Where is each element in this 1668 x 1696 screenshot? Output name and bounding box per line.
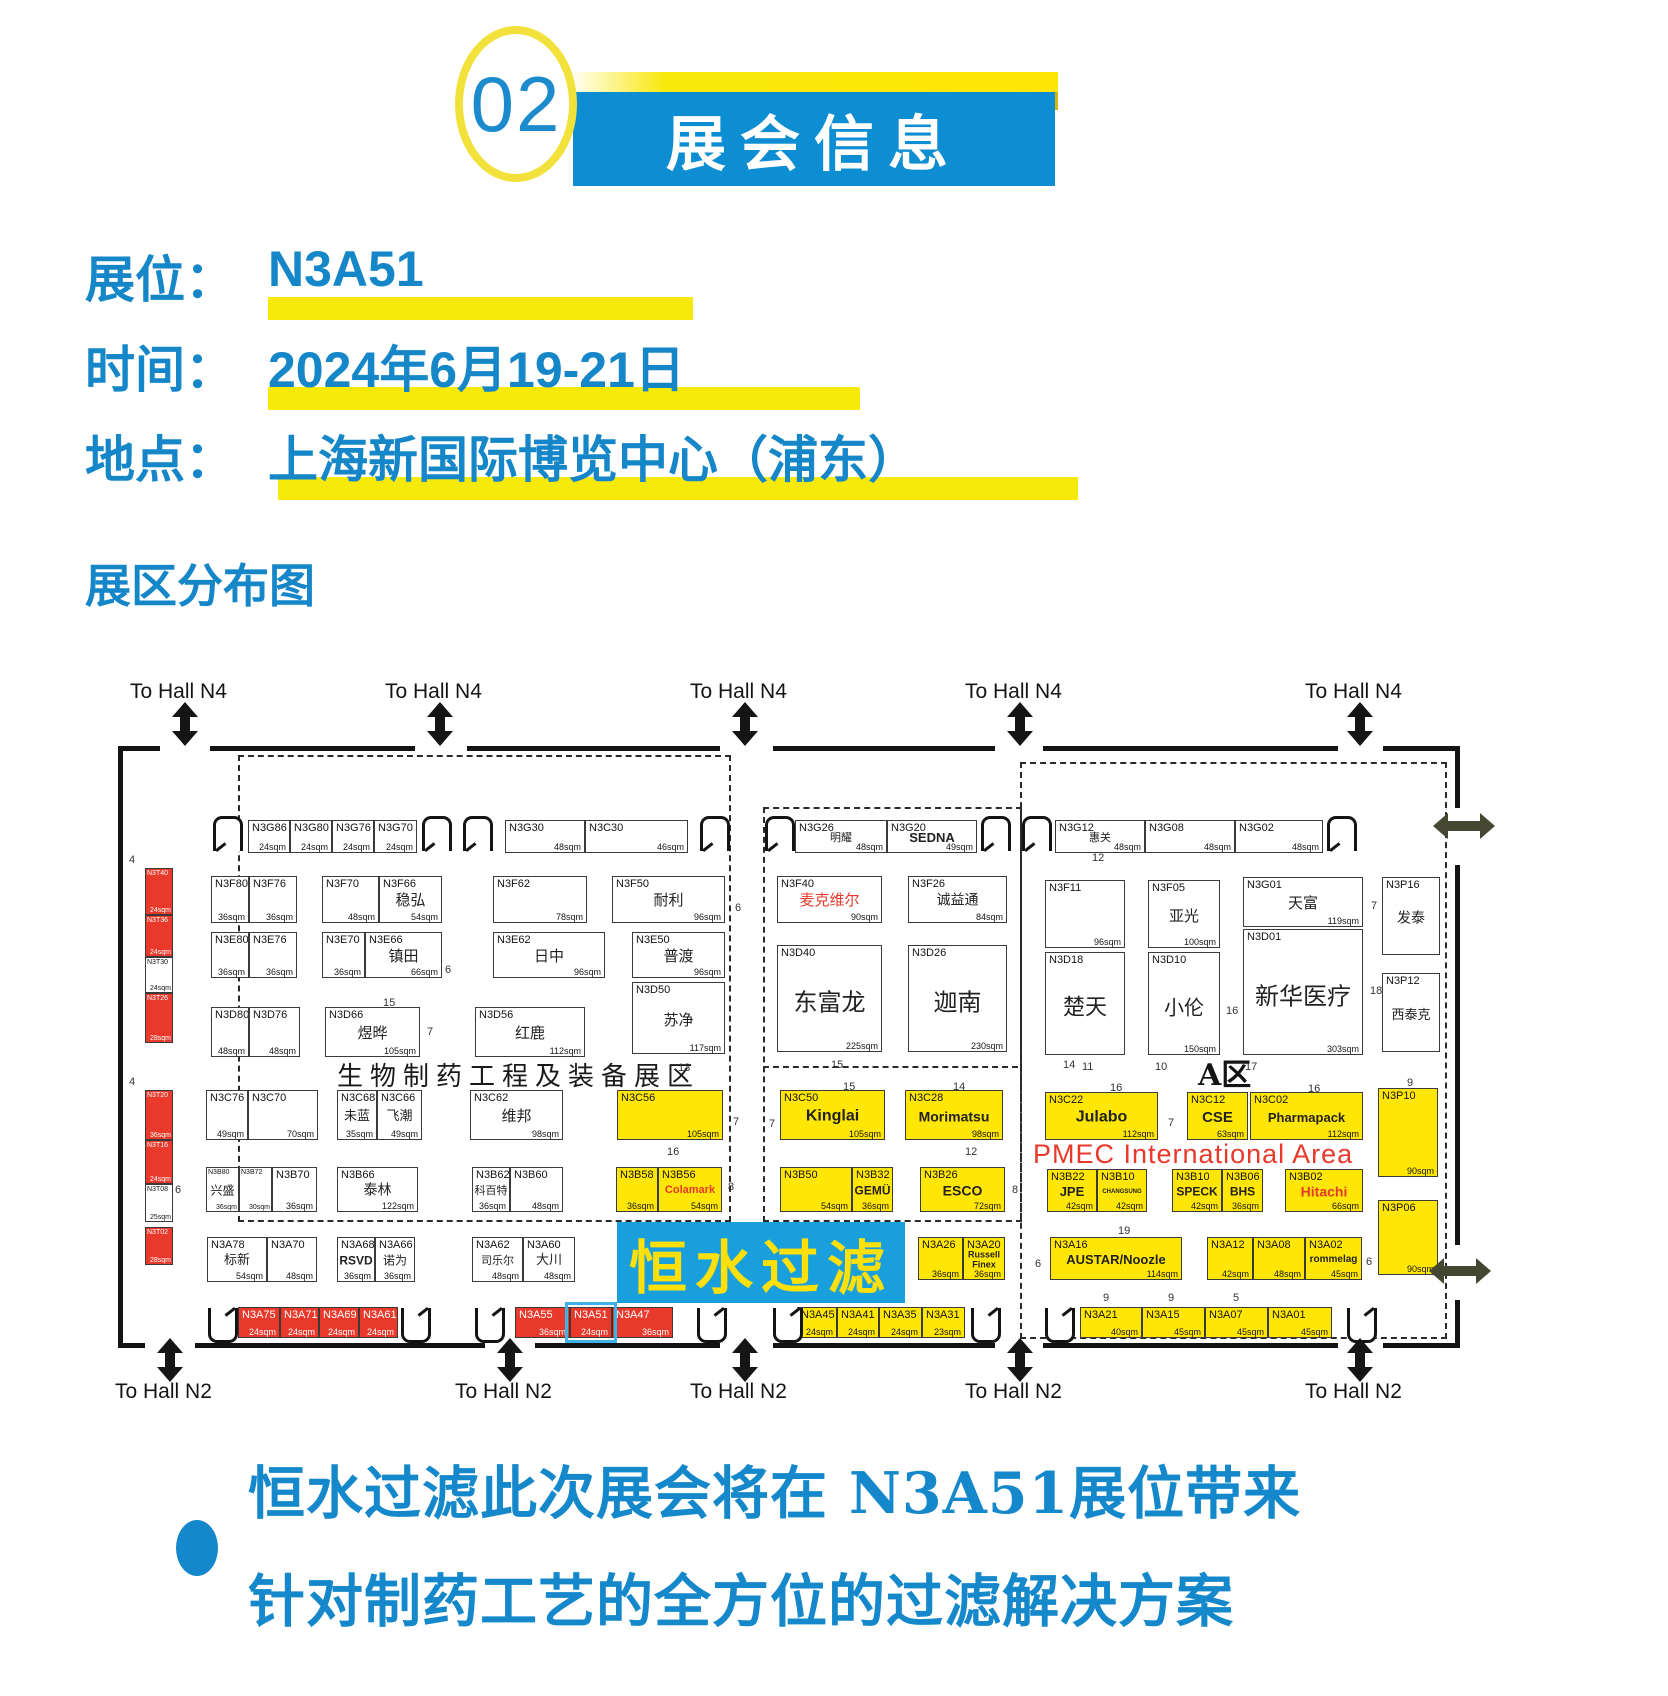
booth-id: N3C02 [1254, 1094, 1288, 1106]
booth-id: N3C68 [341, 1092, 375, 1104]
booth-exhibitor-name: RSVD [338, 1255, 374, 1268]
booth-N3A62: N3A62司乐尔48sqm [472, 1237, 523, 1282]
booth-area: 96sqm [694, 912, 721, 922]
booth-id: N3E80 [215, 934, 249, 946]
booth-N3D80: N3D8048sqm [211, 1007, 249, 1057]
booth-area: 49sqm [946, 842, 973, 852]
booth-id: N3B10 [1101, 1171, 1135, 1183]
booth-area: 230sqm [971, 1041, 1003, 1051]
booth-N3E50: N3E50普渡96sqm [632, 932, 725, 978]
booth-id: N3C70 [252, 1092, 286, 1104]
booth-area: 24sqm [367, 1327, 394, 1337]
left-right-arrow-icon [1429, 1258, 1491, 1284]
booth-area: 24sqm [150, 1176, 171, 1183]
booth-id: N3A60 [527, 1239, 561, 1251]
booth-N3B32: N3B32GEMÜ36sqm [852, 1167, 893, 1212]
booth-N3G12: N3G12惠关48sqm [1055, 820, 1145, 853]
booth-exhibitor-name: 天富 [1244, 896, 1362, 912]
booth-area: 48sqm [1274, 1269, 1301, 1279]
booth-area: 48sqm [532, 1201, 559, 1211]
booth-N3T08: N3T0825sqm [145, 1184, 173, 1222]
door-icon [1045, 1308, 1075, 1343]
booth-exhibitor-name: 司乐尔 [473, 1255, 522, 1267]
booth-N3G70: N3G7024sqm [374, 820, 417, 853]
booth-N3C12: N3C12CSE63sqm [1187, 1092, 1248, 1140]
booth-id: N3A61 [363, 1309, 397, 1321]
booth-N3P10: N3P1090sqm [1378, 1088, 1438, 1177]
booth-id: N3A71 [284, 1309, 318, 1321]
booth-id: N3E76 [253, 934, 287, 946]
booth-id: N3A45 [801, 1309, 835, 1321]
section-title: 展会信息 [666, 96, 962, 183]
booth-N3C02: N3C02Pharmapack112sqm [1250, 1092, 1363, 1140]
booth-N3A71: N3A7124sqm [280, 1307, 319, 1338]
booth-area: 45sqm [1331, 1269, 1358, 1279]
aisle-number: 17 [1245, 1061, 1257, 1073]
booth-id: N3F76 [253, 878, 286, 890]
booth-N3B60: N3B6048sqm [510, 1167, 563, 1212]
booth-area: 112sqm [1328, 1129, 1359, 1139]
booth-id: N3G86 [252, 822, 287, 834]
booth-N3A12: N3A1242sqm [1207, 1237, 1253, 1280]
booth-id: N3D80 [215, 1009, 249, 1021]
booth-exhibitor-name: JPE [1048, 1185, 1096, 1199]
booth-area: 36sqm [862, 1201, 889, 1211]
booth-area: 24sqm [386, 842, 413, 852]
booth-N3F50: N3F50耐利96sqm [612, 876, 725, 923]
booth-id: N3F50 [616, 878, 649, 890]
booth-N3A21: N3A2140sqm [1080, 1307, 1142, 1338]
booth-id: N3A16 [1054, 1239, 1088, 1251]
aisle-number: 6 [445, 964, 451, 976]
aisle-number: 15 [831, 1059, 843, 1071]
booth-area: 46sqm [657, 842, 684, 852]
booth-N3G26: N3G26明耀48sqm [795, 820, 887, 853]
booth-id: N3G08 [1149, 822, 1184, 834]
booth-exhibitor-name: Hitachi [1286, 1185, 1362, 1200]
booth-area: 105sqm [687, 1129, 719, 1139]
up-down-arrow-icon [1347, 702, 1373, 746]
booth-area: 35sqm [346, 1129, 373, 1139]
booth-area: 24sqm [150, 907, 171, 914]
booth-id: N3T16 [147, 1142, 168, 1149]
aisle-number: 13 [678, 1062, 690, 1074]
aisle-number: 5 [1233, 1292, 1239, 1304]
booth-area: 105sqm [384, 1046, 416, 1056]
booth-N3D40: N3D40东富龙225sqm [777, 945, 882, 1052]
door-icon [700, 816, 730, 851]
booth-id: N3D66 [329, 1009, 363, 1021]
booth-N3G08: N3G0848sqm [1145, 820, 1235, 853]
booth-N3C68: N3C68未蓝35sqm [337, 1090, 377, 1140]
booth-area: 78sqm [556, 912, 583, 922]
booth-N3G86: N3G8624sqm [248, 820, 290, 853]
booth-exhibitor-name: 科百特 [473, 1185, 509, 1197]
aisle-number: 6 [1035, 1258, 1041, 1270]
booth-area: 63sqm [1217, 1129, 1244, 1139]
booth-exhibitor-name: 苏净 [633, 1013, 724, 1029]
booth-area: 24sqm [343, 842, 370, 852]
booth-id: N3F11 [1049, 882, 1081, 894]
booth-N3A75: N3A7524sqm [238, 1307, 280, 1338]
wall-segment [1043, 746, 1338, 751]
booth-id: N3G80 [294, 822, 329, 834]
booth-N3G01: N3G01天富119sqm [1243, 877, 1363, 927]
booth-id: N3B72 [241, 1169, 262, 1176]
booth-exhibitor-name: Russell Finex [964, 1251, 1004, 1270]
booth-area: 36sqm [932, 1269, 959, 1279]
booth-id: N3B26 [924, 1169, 958, 1181]
wall-segment [1455, 865, 1460, 1245]
booth-exhibitor-name: SPECK [1173, 1186, 1221, 1199]
booth-id: N3F62 [497, 878, 530, 890]
booth-id: N3A70 [271, 1239, 305, 1251]
wall-segment [467, 746, 720, 751]
booth-exhibitor-name: 大川 [524, 1254, 574, 1268]
booth-N3D01: N3D01新华医疗303sqm [1243, 929, 1363, 1055]
booth-id: N3B22 [1051, 1171, 1085, 1183]
aisle-number: 9 [1168, 1292, 1174, 1304]
booth-id: N3A55 [519, 1309, 553, 1321]
booth-area: 117sqm [690, 1043, 721, 1053]
hall-label-n4: To Hall N4 [385, 680, 482, 704]
booth-id: N3B10 [1176, 1171, 1210, 1183]
booth-id: N3G02 [1239, 822, 1274, 834]
booth-area: 45sqm [1237, 1327, 1264, 1337]
aisle-number: 12 [965, 1146, 977, 1158]
booth-N3F66: N3F66稳弘54sqm [379, 876, 442, 923]
up-down-arrow-icon [1347, 1338, 1373, 1382]
booth-N3B56: N3B56Colamark54sqm [658, 1167, 722, 1212]
booth-exhibitor-name: 兴盛 [207, 1185, 238, 1198]
booth-id: N3D76 [253, 1009, 287, 1021]
booth-id: N3A31 [926, 1309, 960, 1321]
booth-N3P12: N3P12西泰克 [1382, 973, 1440, 1052]
booth-id: N3C66 [381, 1092, 415, 1104]
wall-segment [773, 1343, 995, 1348]
booth-exhibitor-name: 维邦 [471, 1109, 562, 1125]
booth-id: N3F26 [912, 878, 945, 890]
door-icon [463, 816, 493, 851]
booth-id: N3D10 [1152, 954, 1186, 966]
aisle-number: 7 [769, 1118, 775, 1130]
booth-N3B06: N3B06BHS36sqm [1222, 1169, 1263, 1212]
booth-N3T40: N3T4024sqm [145, 868, 173, 915]
booth-area: 54sqm [691, 1201, 718, 1211]
booth-exhibitor-name: Julabo [1046, 1109, 1157, 1126]
hall-label-n2: To Hall N2 [690, 1380, 787, 1404]
booth-N3A68: N3A68RSVD36sqm [337, 1237, 375, 1282]
booth-N3A61: N3A6124sqm [359, 1307, 398, 1338]
booth-area: 45sqm [1174, 1327, 1201, 1337]
booth-area: 42sqm [1066, 1201, 1093, 1211]
booth-N3B10: N3B10SPECK42sqm [1172, 1169, 1222, 1212]
booth-id: N3A15 [1146, 1309, 1180, 1321]
booth-exhibitor-name: 镇田 [366, 949, 441, 965]
aisle-number: 8 [728, 1181, 734, 1193]
booth-area: 24sqm [249, 1327, 276, 1337]
booth-N3B72: N3B7230sqm [239, 1167, 272, 1212]
booth-area: 36sqm [479, 1201, 506, 1211]
booth-id: N3P16 [1386, 879, 1420, 891]
booth-id: N3F80 [215, 878, 248, 890]
up-down-arrow-icon [172, 702, 198, 746]
booth-id: N3B66 [341, 1169, 375, 1181]
hall-label-n4: To Hall N4 [965, 680, 1062, 704]
hall-label-n4: To Hall N4 [130, 680, 227, 704]
booth-exhibitor-name: 日中 [494, 949, 604, 965]
booth-N3F62: N3F6278sqm [493, 876, 587, 923]
booth-area: 150sqm [1184, 1044, 1216, 1054]
booth-N3G76: N3G7624sqm [332, 820, 374, 853]
booth-exhibitor-name: 诚益通 [909, 894, 1006, 909]
booth-area: 42sqm [1191, 1201, 1218, 1211]
booth-area: 45sqm [1301, 1327, 1328, 1337]
booth-area: 114sqm [1147, 1269, 1178, 1279]
booth-id: N3A75 [242, 1309, 276, 1321]
booth-id: N3P06 [1382, 1202, 1416, 1214]
time-info-row: 时间： 2024年6月19-21日 [0, 330, 1668, 392]
booth-area: 36sqm [216, 1204, 237, 1211]
door-icon [422, 816, 452, 851]
booth-N3B62: N3B62科百特36sqm [472, 1167, 510, 1212]
booth-N3B26: N3B26ESCO72sqm [920, 1167, 1005, 1212]
booth-N3A66: N3A66诺为36sqm [375, 1237, 415, 1282]
hall-label-n4: To Hall N4 [1305, 680, 1402, 704]
door-icon [1022, 816, 1052, 851]
section-number-badge: 02 [455, 26, 577, 182]
booth-id: N3F70 [326, 878, 359, 890]
aisle-number: 7 [1371, 900, 1377, 912]
booth-N3E80: N3E8036sqm [211, 932, 249, 978]
booth-area: 48sqm [492, 1271, 519, 1281]
booth-id: N3B62 [476, 1169, 510, 1181]
booth-N3B22: N3B22JPE42sqm [1047, 1169, 1097, 1212]
booth-id: N3D01 [1247, 931, 1281, 943]
booth-N3A15: N3A1545sqm [1142, 1307, 1205, 1338]
booth-N3D18: N3D18楚天 [1045, 952, 1125, 1055]
booth-id: N3A41 [841, 1309, 875, 1321]
booth-N3F26: N3F26诚益通84sqm [908, 876, 1007, 923]
aisle-number: 18 [1370, 985, 1382, 997]
booth-id: N3C30 [589, 822, 623, 834]
aisle-number: 14 [1063, 1059, 1075, 1071]
bullet-icon [176, 1520, 218, 1576]
booth-N3B80: N3B80兴盛36sqm [206, 1167, 239, 1212]
booth-N3E66: N3E66镇田66sqm [365, 932, 442, 978]
booth-area: 42sqm [1116, 1201, 1143, 1211]
booth-id: N3G30 [509, 822, 544, 834]
up-down-arrow-icon [1007, 702, 1033, 746]
aisle-number: 11 [1082, 1061, 1093, 1073]
wall-segment [1455, 1300, 1460, 1348]
booth-area: 40sqm [1111, 1327, 1138, 1337]
booth-exhibitor-name: 东富龙 [778, 990, 881, 1015]
door-icon [773, 1308, 803, 1343]
booth-id: N3B02 [1289, 1171, 1323, 1183]
booth-area: 96sqm [574, 967, 601, 977]
booth-area: 24sqm [848, 1327, 875, 1337]
booth-id: N3A35 [883, 1309, 917, 1321]
booth-area: 28sqm [150, 1257, 171, 1264]
booth-exhibitor-name: ESCO [921, 1184, 1004, 1199]
wall-segment [1455, 746, 1460, 808]
booth-exhibitor-name: 稳弘 [380, 893, 441, 909]
booth-id: N3C56 [621, 1092, 655, 1104]
booth-N3C30: N3C3046sqm [585, 820, 688, 853]
booth-N3T36: N3T3624sqm [145, 915, 173, 957]
booth-N3A20: N3A20Russell Finex36sqm [963, 1237, 1005, 1280]
booth-N3A78: N3A78标新54sqm [207, 1237, 267, 1282]
aisle-number: 6 [735, 902, 741, 914]
venue-value: 上海新国际博览中心（浦东） [268, 420, 918, 492]
booth-area: 36sqm [627, 1201, 654, 1211]
booth-N3T02: N3T0228sqm [145, 1227, 173, 1265]
section-header-banner: 展会信息 [573, 92, 1055, 186]
door-icon [697, 1308, 727, 1343]
hall-label-n2: To Hall N2 [1305, 1380, 1402, 1404]
booth-exhibitor-name: 小伦 [1149, 997, 1219, 1018]
zone-label: A区 [1198, 1050, 1251, 1094]
time-value: 2024年6月19-21日 [268, 330, 685, 402]
hall-label-n2: To Hall N2 [115, 1380, 212, 1404]
booth-N3T20: N3T2036sqm [145, 1090, 173, 1140]
booth-N3A35: N3A3524sqm [879, 1307, 922, 1338]
booth-N3B70: N3B7036sqm [272, 1167, 317, 1212]
aisle-number: 9 [1103, 1292, 1109, 1304]
booth-N3C56: N3C56105sqm [617, 1090, 723, 1140]
booth-area: 303sqm [1327, 1044, 1359, 1054]
booth-exhibitor-name: 诺为 [376, 1255, 414, 1268]
aisle-number: 19 [1118, 1225, 1130, 1237]
door-icon [208, 1308, 238, 1343]
booth-exhibitor-name: 麦克维尔 [778, 893, 881, 909]
booth-id: N3G01 [1247, 879, 1282, 891]
booth-area: 90sqm [851, 912, 878, 922]
booth-area: 48sqm [1204, 842, 1231, 852]
booth-N3F80: N3F8036sqm [211, 876, 249, 923]
door-icon [981, 816, 1011, 851]
booth-area: 48sqm [856, 842, 883, 852]
booth-N3C66: N3C66飞潮49sqm [377, 1090, 422, 1140]
booth-N3A02: N3A02rommelag45sqm [1305, 1237, 1362, 1280]
booth-N3F70: N3F7048sqm [322, 876, 379, 923]
booth-id: N3C28 [909, 1092, 943, 1104]
booth-id: N3B32 [856, 1169, 890, 1181]
booth-id: N3E66 [369, 934, 403, 946]
booth-area: 36sqm [266, 912, 293, 922]
booth-exhibitor-name: Pharmapack [1251, 1111, 1362, 1125]
up-down-arrow-icon [157, 1338, 183, 1382]
booth-id: N3A26 [922, 1239, 956, 1251]
booth-area: 24sqm [328, 1327, 355, 1337]
aisle-number: 4 [129, 1076, 135, 1088]
booth-area: 119sqm [1328, 916, 1359, 926]
booth-area: 36sqm [150, 1132, 171, 1139]
booth-N3T16: N3T1624sqm [145, 1140, 173, 1184]
booth-N3G80: N3G8024sqm [290, 820, 332, 853]
booth-exhibitor-name: rommelag [1306, 1255, 1361, 1266]
booth-N3E62: N3E62日中96sqm [493, 932, 605, 978]
venue-info-row: 地点： 上海新国际博览中心（浦东） [0, 420, 1668, 482]
booth-area: 36sqm [974, 1269, 1001, 1279]
aisle-number: 7 [733, 1116, 739, 1128]
booth-N3A07: N3A0745sqm [1205, 1307, 1268, 1338]
booth-area: 72sqm [974, 1201, 1001, 1211]
booth-exhibitor-name: 煜晔 [326, 1026, 419, 1042]
time-label: 时间： [85, 330, 235, 402]
booth-N3D76: N3D7648sqm [249, 1007, 300, 1057]
booth-area: 24sqm [806, 1327, 833, 1337]
booth-exhibitor-name: 飞潮 [378, 1110, 421, 1124]
booth-N3C50: N3C50Kinglai105sqm [780, 1090, 885, 1140]
booth-id: N3E62 [497, 934, 531, 946]
hall-label-n2: To Hall N2 [455, 1380, 552, 1404]
booth-N3C22: N3C22Julabo112sqm [1045, 1092, 1158, 1140]
booth-N3T30: N3T3024sqm [145, 957, 173, 993]
booth-id: N3T30 [147, 959, 168, 966]
booth-id: N3E50 [636, 934, 670, 946]
booth-id: N3B70 [276, 1169, 310, 1181]
booth-area: 96sqm [694, 967, 721, 977]
booth-area: 48sqm [269, 1046, 296, 1056]
booth-exhibitor-name: 红鹿 [476, 1026, 584, 1042]
booth-exhibitor-name: Colamark [659, 1185, 721, 1197]
booth-area: 42sqm [1222, 1269, 1249, 1279]
booth-area: 49sqm [217, 1129, 244, 1139]
booth-N3D66: N3D66煜晔105sqm [325, 1007, 420, 1057]
booth-area: 96sqm [1094, 937, 1121, 947]
booth-id: N3T40 [147, 870, 168, 877]
wall-segment [210, 746, 415, 751]
booth-id: N3C76 [210, 1092, 244, 1104]
booth-N3A60: N3A60大川48sqm [523, 1237, 575, 1282]
booth-id: N3C50 [784, 1092, 818, 1104]
booth-area: 36sqm [642, 1327, 669, 1337]
booth-N3A31: N3A3123sqm [922, 1307, 965, 1338]
booth-N3A26: N3A2636sqm [918, 1237, 963, 1280]
header-yellow-bar [568, 72, 1058, 93]
booth-N3A16: N3A16AUSTAR/Noozle114sqm [1050, 1237, 1182, 1280]
booth-N3P16: N3P16发泰 [1382, 877, 1440, 955]
booth-id: N3G70 [378, 822, 413, 834]
booth-id: N3A12 [1211, 1239, 1245, 1251]
booth-id: N3A69 [323, 1309, 357, 1321]
aisle-number: 6 [175, 1184, 181, 1196]
booth-N3F11: N3F1196sqm [1045, 880, 1125, 948]
booth-area: 48sqm [1292, 842, 1319, 852]
booth-exhibitor-name: 未蓝 [338, 1110, 376, 1124]
wall-segment [118, 1343, 145, 1348]
booth-N3G02: N3G0248sqm [1235, 820, 1323, 853]
door-icon [971, 1308, 1001, 1343]
zone-label: PMEC International Area [1033, 1139, 1353, 1170]
hall-label-n4: To Hall N4 [690, 680, 787, 704]
booth-id: N3A68 [341, 1239, 375, 1251]
booth-area: 36sqm [218, 967, 245, 977]
booth-N3B66: N3B66泰林122sqm [337, 1167, 418, 1212]
booth-id: N3D26 [912, 947, 946, 959]
booth-id: N3A21 [1084, 1309, 1118, 1321]
booth-area: 48sqm [286, 1271, 313, 1281]
booth-id: N3C12 [1191, 1094, 1225, 1106]
aisle-number: 12 [1092, 852, 1104, 864]
door-icon [765, 816, 795, 851]
booth-id: N3B58 [620, 1169, 654, 1181]
aisle-number: 16 [1226, 1005, 1238, 1017]
booth-N3A45: N3A4524sqm [797, 1307, 837, 1338]
booth-N3F05: N3F05亚光100sqm [1148, 880, 1220, 948]
